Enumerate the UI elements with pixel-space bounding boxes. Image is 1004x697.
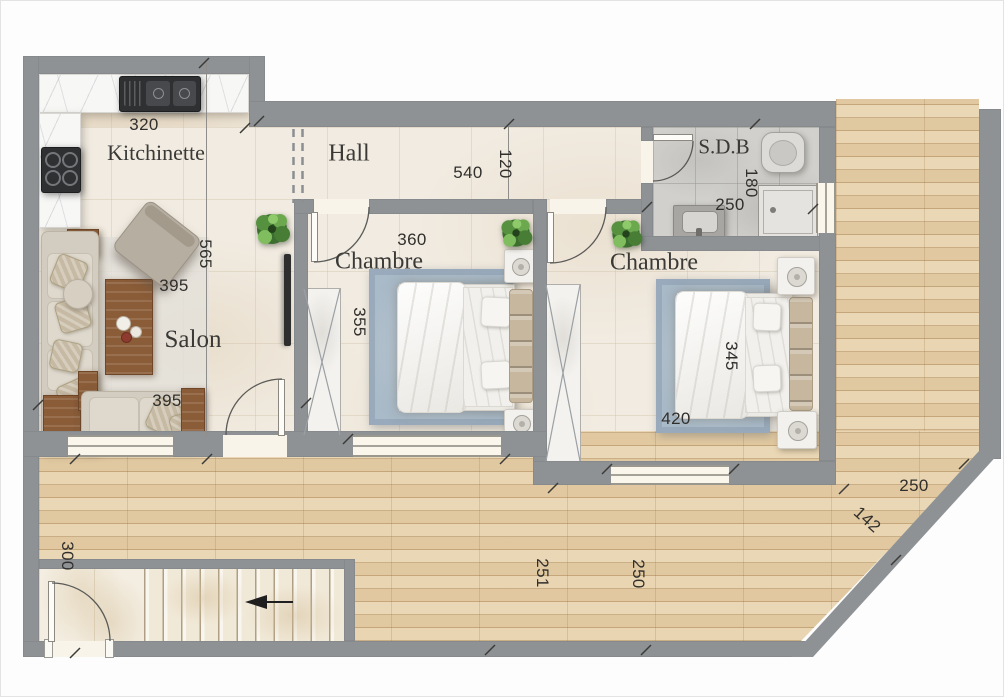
- dim-terrace-length-left: 251: [532, 558, 552, 588]
- lamp-icon: [512, 258, 530, 276]
- floor-plan: Kitchinette Hall Salon Chambre Chambre S…: [0, 0, 1004, 697]
- tv-screen: [284, 254, 291, 346]
- room-label-chambre-1: Chambre: [335, 249, 423, 276]
- lamp-icon: [788, 421, 808, 441]
- tray-cup: [116, 316, 131, 331]
- chambre2-headboard: [789, 297, 813, 411]
- room-label-sdb: S.D.B: [698, 135, 749, 160]
- wall-hall-chambre1-right: [369, 199, 533, 214]
- wall-sdb-left-upper: [641, 127, 653, 141]
- dim-hall-width: 120: [495, 149, 515, 179]
- chambre2-pillow: [753, 303, 782, 332]
- coffee-table: [105, 279, 153, 375]
- dim-salon-width-lower: 395: [152, 391, 182, 411]
- room-label-kitchinette: Kitchinette: [107, 140, 205, 166]
- sdb-door-leaf: [653, 134, 693, 141]
- burner-icon: [62, 170, 78, 186]
- round-ottoman: [63, 279, 93, 309]
- chambre1-door-opening: [314, 199, 369, 214]
- room-label-salon: Salon: [165, 326, 222, 354]
- entry-door-opening: [44, 641, 114, 657]
- dim-terrace-right-width: 250: [899, 476, 929, 496]
- chambre2-nightstand-top: [777, 257, 815, 295]
- sdb-door-opening: [641, 141, 653, 183]
- dim-hall-length: 540: [453, 163, 483, 183]
- entry-door-jamb: [105, 639, 114, 658]
- wall-right: [979, 109, 1001, 459]
- chambre2-window: [611, 465, 729, 485]
- stairs: [144, 569, 344, 641]
- dim-salon-width-upper: 395: [159, 276, 189, 296]
- dim-kitchinette-salon-depth: 565: [195, 239, 215, 269]
- burner-icon: [45, 152, 61, 168]
- stove-cooktop: [41, 147, 81, 193]
- wall-top-main: [249, 101, 836, 127]
- entry-door-leaf: [48, 581, 55, 642]
- deck-right: [836, 99, 979, 456]
- faucet-icon: [179, 88, 190, 99]
- dim-chambre2-width: 420: [661, 409, 691, 429]
- dim-sdb-width: 250: [715, 195, 745, 215]
- kitchen-sink: [119, 76, 201, 112]
- chambre1-wardrobe: [303, 288, 341, 436]
- dim-chambre1-width: 360: [397, 230, 427, 250]
- chambre2-door-opening: [550, 199, 606, 214]
- plant-icon: [496, 213, 536, 258]
- dim-chambre1-depth: 355: [349, 307, 369, 337]
- sdb-deck-door: [816, 183, 836, 233]
- wall-left: [23, 56, 39, 657]
- chambre1-duvet: [397, 282, 467, 413]
- chambre2-wardrobe: [545, 284, 581, 462]
- wall-stairs-stub: [344, 559, 355, 641]
- plant-icon: [250, 207, 294, 256]
- chambre1-headboard: [509, 289, 533, 403]
- lamp-icon: [787, 267, 807, 287]
- room-label-hall: Hall: [328, 141, 369, 168]
- chambre1-pillow: [480, 360, 511, 390]
- toilet: [761, 132, 805, 173]
- shower-drain-icon: [770, 207, 776, 213]
- dim-chambre2-depth: 345: [721, 341, 741, 371]
- dim-entry-width: 300: [57, 541, 77, 571]
- chambre2-nightstand-bottom: [777, 411, 817, 449]
- chambre2-pillow: [753, 365, 782, 393]
- sink-drainboard: [124, 81, 142, 106]
- burner-icon: [45, 170, 61, 186]
- salon-window: [68, 435, 173, 457]
- salon-terrace-door-opening: [223, 435, 287, 457]
- salon-terrace-door-leaf: [278, 379, 285, 436]
- faucet-icon: [153, 88, 164, 99]
- chambre1-window: [353, 435, 501, 457]
- wall-stairs-top: [39, 559, 355, 569]
- toilet-bowl: [769, 140, 797, 166]
- throw-pillow: [48, 338, 84, 374]
- dim-sdb-depth: 180: [741, 168, 761, 198]
- side-table-right: [181, 388, 205, 432]
- tray-bowl: [121, 332, 132, 343]
- dim-kitchinette-width: 320: [129, 115, 159, 135]
- wall-bottom: [23, 641, 813, 657]
- chambre1-pillow: [480, 296, 512, 328]
- wall-kitchinette-top: [23, 56, 265, 74]
- chambre2-door-leaf: [547, 212, 554, 263]
- burner-icon: [62, 152, 78, 168]
- wall-salon-chambre1: [294, 199, 308, 435]
- dim-terrace-length-right: 250: [628, 559, 648, 589]
- plant-icon: [606, 214, 646, 259]
- chambre1-door-leaf: [311, 212, 318, 262]
- wall-sdb-chambre2-right: [819, 127, 836, 461]
- shower: [758, 185, 818, 239]
